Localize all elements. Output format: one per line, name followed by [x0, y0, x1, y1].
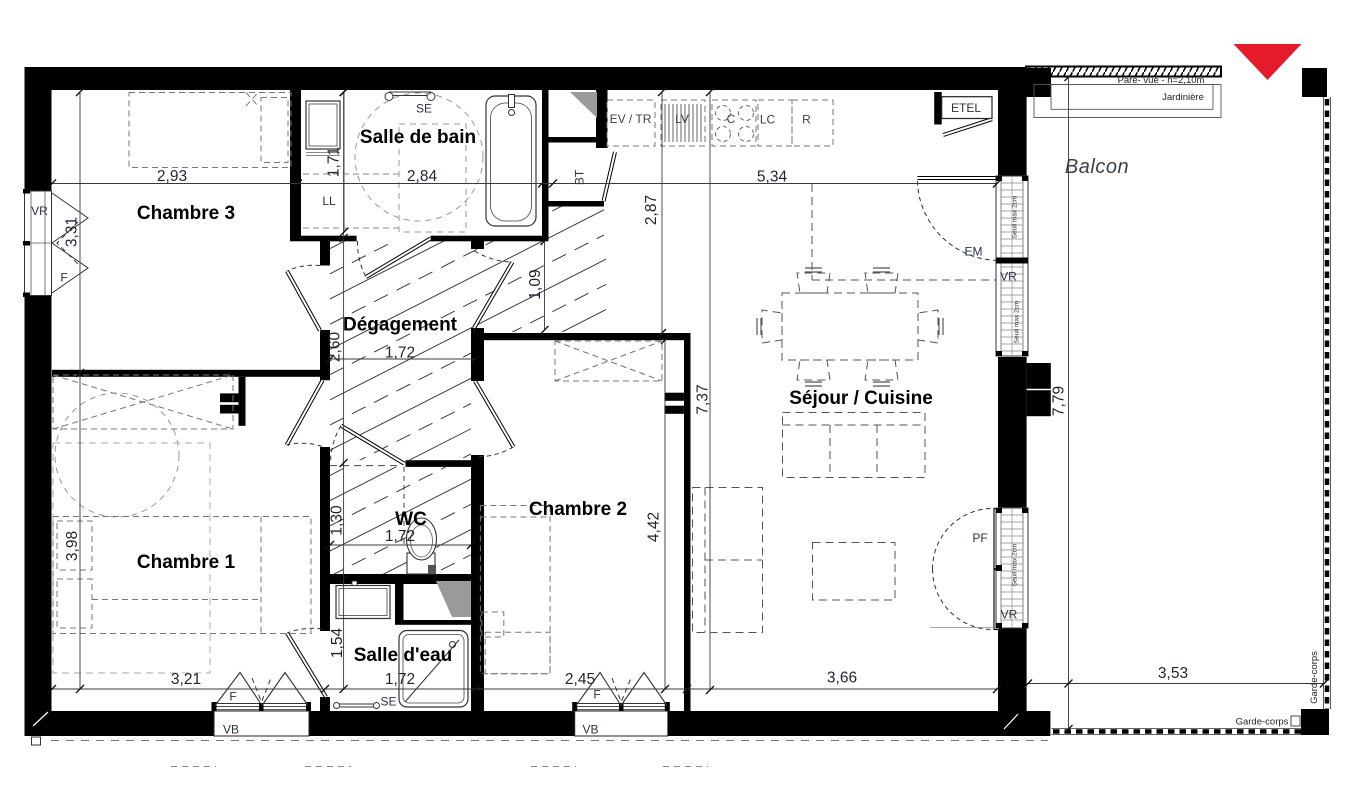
svg-text:1,72: 1,72	[385, 671, 415, 688]
svg-text:Seuil max 2cm: Seuil max 2cm	[1012, 196, 1019, 239]
svg-text:Garde-corps: Garde-corps	[1309, 651, 1320, 704]
svg-text:3,31: 3,31	[64, 217, 81, 247]
svg-text:Seuil max 2cm: Seuil max 2cm	[1014, 301, 1021, 344]
svg-text:Chambre 3: Chambre 3	[137, 203, 235, 224]
svg-text:7,37: 7,37	[695, 384, 712, 414]
svg-text:Salle d'eau: Salle d'eau	[354, 645, 453, 666]
svg-text:SE: SE	[416, 102, 432, 116]
svg-text:LC: LC	[760, 113, 776, 127]
svg-text:VB: VB	[582, 723, 598, 737]
svg-text:ETEL: ETEL	[951, 101, 981, 115]
svg-text:5,34: 5,34	[757, 169, 788, 186]
svg-text:3,53: 3,53	[1158, 665, 1188, 682]
svg-text:EM: EM	[965, 245, 983, 259]
svg-text:1,54: 1,54	[329, 628, 346, 659]
svg-text:3,98: 3,98	[64, 531, 81, 561]
svg-text:C: C	[727, 112, 736, 126]
svg-text:VR: VR	[1000, 270, 1017, 284]
svg-text:1,72: 1,72	[385, 345, 415, 362]
svg-text:EV / TR: EV / TR	[610, 112, 652, 126]
svg-text:2,60: 2,60	[327, 332, 344, 363]
svg-text:PF: PF	[972, 531, 987, 545]
svg-text:2,93: 2,93	[157, 168, 187, 185]
svg-text:LL: LL	[322, 194, 336, 208]
svg-text:3,21: 3,21	[171, 671, 201, 688]
svg-text:F: F	[229, 690, 236, 704]
svg-text:3,66: 3,66	[827, 670, 857, 687]
svg-text:Chambre 1: Chambre 1	[137, 552, 236, 573]
svg-text:1,09: 1,09	[527, 269, 544, 299]
svg-text:2,45: 2,45	[565, 671, 595, 688]
svg-text:Séjour / Cuisine: Séjour / Cuisine	[789, 388, 933, 409]
svg-text:Balcon: Balcon	[1065, 156, 1129, 178]
svg-text:VR: VR	[31, 204, 48, 218]
svg-text:7,79: 7,79	[1051, 386, 1068, 416]
svg-text:Salle de bain: Salle de bain	[360, 127, 476, 148]
svg-text:WC: WC	[395, 509, 427, 530]
svg-text:F: F	[593, 688, 600, 702]
svg-text:Garde-corps: Garde-corps	[1236, 717, 1289, 728]
svg-text:Chambre 2: Chambre 2	[529, 499, 627, 520]
svg-text:4,42: 4,42	[646, 512, 663, 542]
svg-text:2,84: 2,84	[407, 168, 438, 185]
svg-text:LV: LV	[675, 112, 689, 126]
svg-text:1,71: 1,71	[326, 147, 343, 177]
svg-text:1,30: 1,30	[329, 505, 346, 536]
svg-text:1,72: 1,72	[385, 528, 415, 545]
svg-text:BT: BT	[573, 169, 587, 185]
svg-text:R: R	[802, 113, 811, 127]
svg-text:2,87: 2,87	[643, 195, 660, 225]
svg-text:F: F	[60, 271, 67, 285]
svg-text:Seuil max 2cm: Seuil max 2cm	[1012, 544, 1019, 587]
svg-text:SE: SE	[380, 695, 396, 709]
svg-text:Jardinière: Jardinière	[1162, 92, 1204, 103]
svg-text:VR: VR	[1001, 608, 1018, 622]
svg-text:Dégagement: Dégagement	[343, 315, 458, 336]
svg-text:Pare- vue - h=2,10m: Pare- vue - h=2,10m	[1118, 75, 1205, 86]
svg-text:VB: VB	[223, 723, 239, 737]
